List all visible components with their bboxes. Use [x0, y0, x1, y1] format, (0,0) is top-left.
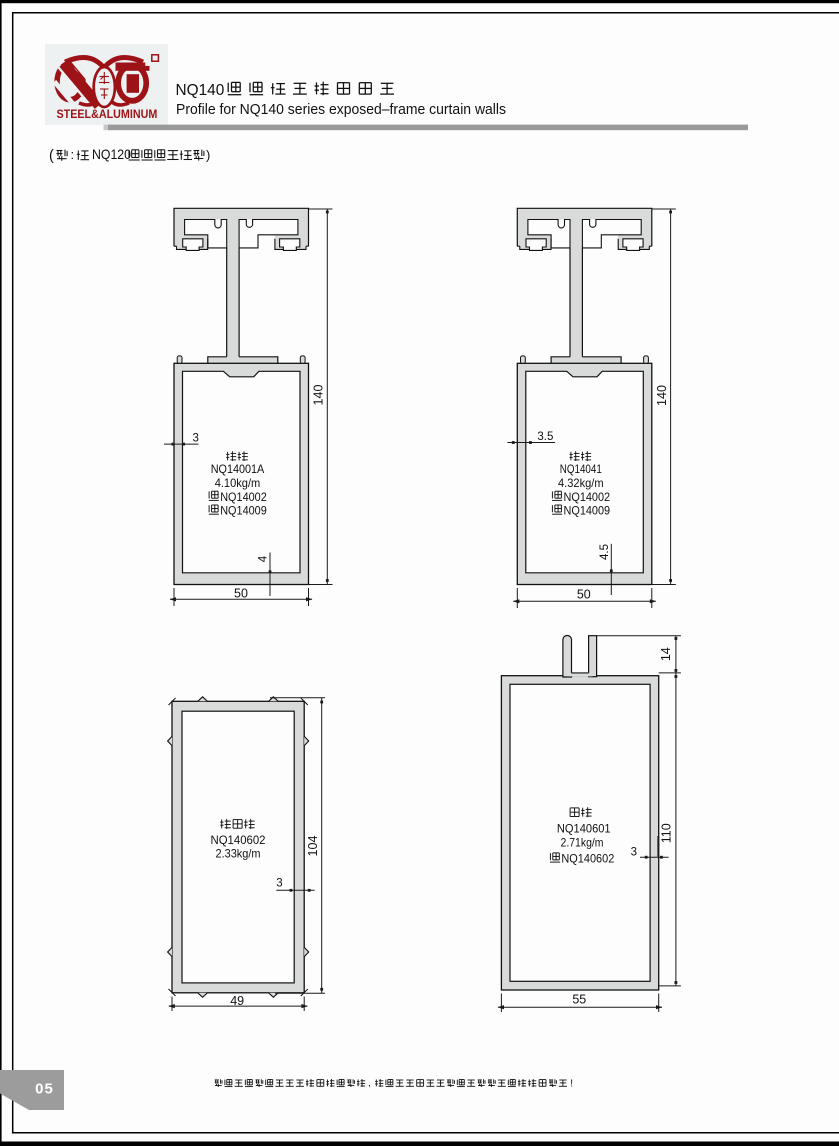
svg-text:55: 55: [572, 992, 586, 1006]
svg-text:NQ14009: NQ14009: [564, 504, 611, 518]
svg-text:NQ14009: NQ14009: [220, 504, 267, 518]
svg-text:14: 14: [659, 647, 673, 661]
svg-text:NQ14002: NQ14002: [564, 490, 611, 504]
svg-text:NQ14001A: NQ14001A: [211, 462, 265, 476]
svg-text:140: 140: [312, 385, 326, 406]
svg-text:50: 50: [577, 588, 591, 602]
svg-text:4.32kg/m: 4.32kg/m: [558, 476, 604, 490]
svg-text:(: (: [49, 148, 54, 164]
svg-text:Profile for NQ140 series expos: Profile for NQ140 series exposed–frame c…: [176, 102, 506, 118]
svg-text:50: 50: [234, 587, 248, 601]
svg-text:3: 3: [276, 878, 282, 890]
svg-text:!: !: [570, 1079, 573, 1090]
svg-text:4.10kg/m: 4.10kg/m: [215, 476, 261, 490]
svg-text:NQ140602: NQ140602: [561, 852, 614, 866]
svg-text:NQ120: NQ120: [92, 146, 131, 162]
svg-text:NQ140601: NQ140601: [557, 821, 611, 835]
svg-text:3: 3: [192, 433, 198, 445]
svg-text:2.33kg/m: 2.33kg/m: [216, 847, 261, 861]
svg-text:4.5: 4.5: [599, 544, 611, 560]
svg-text::: :: [71, 147, 75, 162]
svg-text:2.71kg/m: 2.71kg/m: [561, 836, 604, 850]
svg-text:STEEL&ALUMINUM: STEEL&ALUMINUM: [57, 107, 158, 121]
svg-text:49: 49: [230, 994, 244, 1008]
svg-text:NQ14002: NQ14002: [220, 490, 267, 504]
svg-text:3: 3: [631, 847, 637, 859]
svg-text:110: 110: [660, 823, 674, 843]
svg-text:NQ140: NQ140: [176, 82, 225, 99]
svg-text:3.5: 3.5: [537, 431, 553, 443]
svg-text:140: 140: [655, 385, 669, 406]
svg-text:): ): [206, 148, 210, 163]
svg-text:,: ,: [368, 1078, 371, 1089]
svg-text:4: 4: [258, 555, 270, 562]
svg-text:05: 05: [35, 1081, 54, 1098]
svg-text:NQ14041: NQ14041: [560, 462, 602, 476]
svg-text:104: 104: [306, 836, 320, 857]
svg-text:NQ140602: NQ140602: [211, 833, 266, 847]
